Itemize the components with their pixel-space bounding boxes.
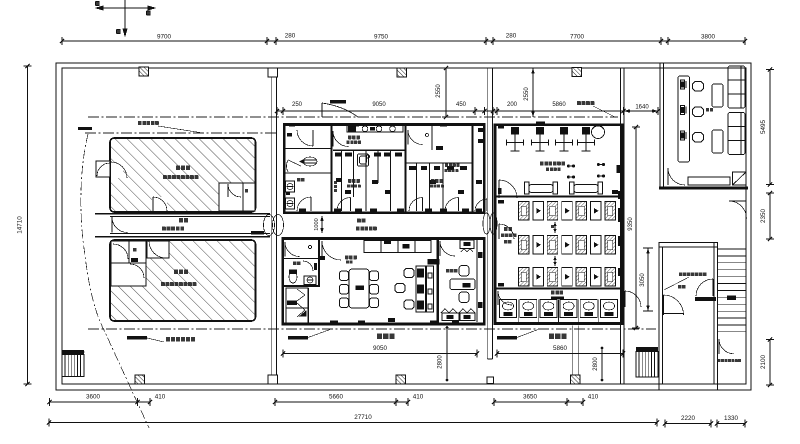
svg-text:450: 450 <box>456 102 467 108</box>
svg-text:9750: 9750 <box>374 34 389 41</box>
svg-text:5860: 5860 <box>553 345 568 352</box>
svg-text:1000: 1000 <box>314 218 320 230</box>
svg-text:9050: 9050 <box>372 102 386 108</box>
svg-text:3650: 3650 <box>523 394 538 401</box>
svg-text:9350: 9350 <box>628 217 634 231</box>
svg-text:1640: 1640 <box>635 105 649 111</box>
svg-text:200: 200 <box>507 102 518 108</box>
svg-text:410: 410 <box>588 394 599 401</box>
svg-text:410: 410 <box>413 394 424 401</box>
svg-text:27710: 27710 <box>354 414 372 421</box>
svg-text:2220: 2220 <box>681 415 696 422</box>
svg-text:1330: 1330 <box>724 415 739 422</box>
svg-text:2100: 2100 <box>760 355 767 370</box>
svg-text:9050: 9050 <box>373 345 388 352</box>
svg-text:2800: 2800 <box>438 355 444 369</box>
svg-text:2800: 2800 <box>593 357 599 371</box>
svg-text:7700: 7700 <box>570 34 585 41</box>
svg-text:2550: 2550 <box>436 84 442 98</box>
svg-text:2550: 2550 <box>524 87 530 101</box>
svg-text:5860: 5860 <box>552 102 566 108</box>
svg-text:280: 280 <box>506 33 517 40</box>
svg-text:5495: 5495 <box>760 120 767 135</box>
svg-text:250: 250 <box>292 102 303 108</box>
svg-text:5660: 5660 <box>329 394 344 401</box>
svg-text:410: 410 <box>155 394 166 401</box>
svg-text:3050: 3050 <box>640 273 646 287</box>
svg-text:3800: 3800 <box>701 34 716 41</box>
svg-text:14710: 14710 <box>17 216 24 234</box>
svg-text:280: 280 <box>285 33 296 40</box>
svg-text:3600: 3600 <box>86 394 101 401</box>
svg-text:9700: 9700 <box>157 34 172 41</box>
svg-text:2350: 2350 <box>760 209 767 224</box>
